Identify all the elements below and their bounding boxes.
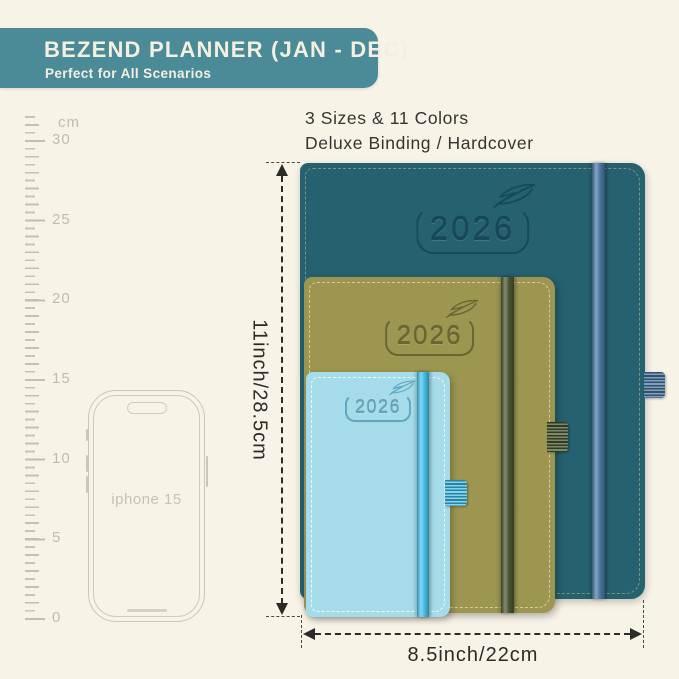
iphone-dynamic-island: [127, 402, 167, 414]
iphone-mute-switch: [86, 429, 88, 441]
arrow-down-icon: [276, 603, 288, 615]
ruler-label: 0: [52, 609, 82, 626]
planner-logo: 2026: [385, 317, 475, 356]
iphone-home-indicator: [127, 609, 167, 612]
ruler-label: 5: [52, 529, 82, 546]
binding-text: Deluxe Binding / Hardcover: [305, 133, 534, 154]
ruler-unit-label: cm: [58, 114, 80, 131]
planner-logo: 2026: [416, 207, 529, 254]
dimension-tick: [266, 162, 300, 163]
product-title: BEZEND PLANNER (JAN - DEC): [44, 37, 409, 63]
dimension-tick: [266, 616, 300, 617]
dimension-line: [315, 633, 630, 635]
feather-icon: [491, 183, 537, 209]
pen-loop: [644, 372, 665, 398]
planner-logo: 2026: [345, 394, 411, 422]
dimension-tick: [643, 600, 644, 648]
year-emboss: 2026: [416, 207, 529, 254]
sizes-colors-text: 3 Sizes & 11 Colors: [305, 108, 469, 129]
elastic-band: [592, 163, 605, 599]
header-banner: BEZEND PLANNER (JAN - DEC) Perfect for A…: [0, 28, 378, 88]
ruler-label: 25: [52, 211, 82, 228]
width-dimension-label: 8.5inch/22cm: [408, 644, 539, 667]
iphone-power-button: [206, 456, 208, 487]
iphone-outline: iphone 15: [88, 390, 205, 622]
elastic-band: [501, 277, 514, 613]
pen-loop: [547, 422, 568, 452]
iphone-label: iphone 15: [89, 491, 204, 508]
arrow-up-icon: [276, 164, 288, 176]
feather-icon: [444, 299, 480, 319]
arrow-right-icon: [630, 628, 642, 640]
product-subtitle: Perfect for All Scenarios: [45, 66, 211, 81]
year-emboss: 2026: [385, 317, 475, 356]
ruler-label: 15: [52, 370, 82, 387]
year-emboss: 2026: [345, 394, 411, 422]
ruler-major-ticks: [25, 140, 45, 621]
ruler-label: 10: [52, 450, 82, 467]
ruler-label: 20: [52, 290, 82, 307]
iphone-volume-up-button: [86, 455, 88, 472]
planner-small-blue: 2026: [306, 372, 450, 617]
height-dimension-label: 11inch/28.5cm: [248, 319, 271, 461]
pen-loop: [445, 480, 467, 506]
feather-icon: [388, 380, 416, 396]
iphone-volume-down-button: [86, 476, 88, 493]
elastic-band: [417, 372, 429, 617]
dimension-line: [281, 176, 283, 604]
ruler-label: 30: [52, 131, 82, 148]
arrow-left-icon: [303, 628, 315, 640]
product-infographic: BEZEND PLANNER (JAN - DEC) Perfect for A…: [0, 0, 679, 679]
dimension-tick: [301, 615, 302, 648]
